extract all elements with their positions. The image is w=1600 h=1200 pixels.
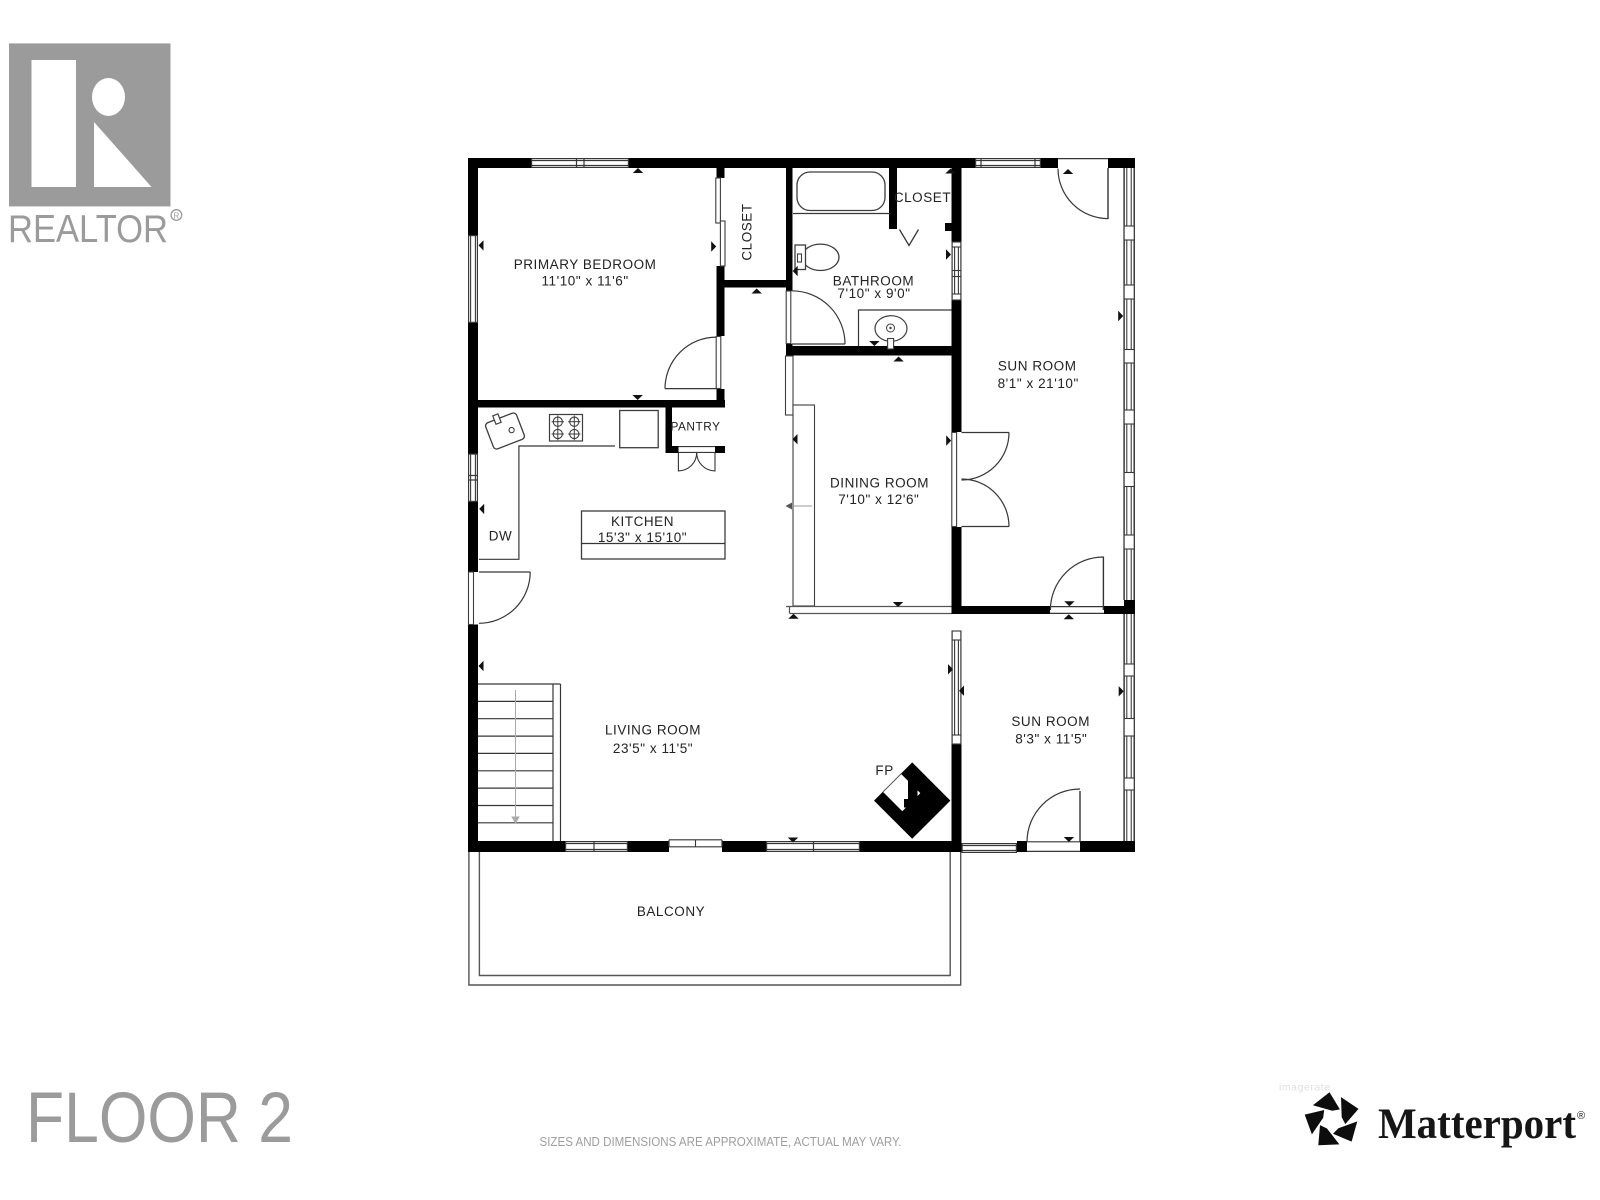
svg-text:REALTOR: REALTOR bbox=[8, 208, 168, 251]
svg-text:DW: DW bbox=[489, 528, 513, 543]
svg-text:SIZES AND DIMENSIONS ARE APPRO: SIZES AND DIMENSIONS ARE APPROXIMATE, AC… bbox=[540, 1135, 902, 1149]
svg-text:CLOSET: CLOSET bbox=[894, 190, 951, 205]
svg-text:PRIMARY BEDROOM: PRIMARY BEDROOM bbox=[514, 257, 657, 272]
svg-text:SUN ROOM: SUN ROOM bbox=[1011, 714, 1090, 729]
svg-text:CLOSET: CLOSET bbox=[740, 203, 755, 260]
svg-text:BALCONY: BALCONY bbox=[637, 904, 705, 919]
svg-text:8'1" x 21'10": 8'1" x 21'10" bbox=[998, 376, 1079, 391]
svg-text:7'10" x 9'0": 7'10" x 9'0" bbox=[837, 286, 910, 301]
svg-text:FP: FP bbox=[875, 763, 893, 778]
svg-text:8'3" x 11'5": 8'3" x 11'5" bbox=[1015, 732, 1087, 747]
svg-text:LIVING ROOM: LIVING ROOM bbox=[605, 723, 701, 738]
svg-text:PANTRY: PANTRY bbox=[670, 420, 720, 434]
svg-text:R: R bbox=[174, 212, 180, 221]
svg-text:SUN ROOM: SUN ROOM bbox=[998, 358, 1077, 373]
svg-text:®: ® bbox=[1577, 1110, 1585, 1122]
svg-text:7'10" x 12'6": 7'10" x 12'6" bbox=[838, 492, 919, 507]
svg-text:DINING ROOM: DINING ROOM bbox=[830, 475, 929, 490]
svg-text:KITCHEN: KITCHEN bbox=[611, 514, 674, 529]
svg-text:Matterport: Matterport bbox=[1378, 1101, 1577, 1148]
svg-text:FLOOR 2: FLOOR 2 bbox=[26, 1079, 293, 1158]
svg-text:15'3" x 15'10": 15'3" x 15'10" bbox=[598, 530, 687, 545]
svg-text:23'5" x 11'5": 23'5" x 11'5" bbox=[613, 741, 693, 756]
svg-text:imagerate: imagerate bbox=[1279, 1082, 1331, 1094]
svg-text:11'10" x 11'6": 11'10" x 11'6" bbox=[541, 274, 628, 289]
